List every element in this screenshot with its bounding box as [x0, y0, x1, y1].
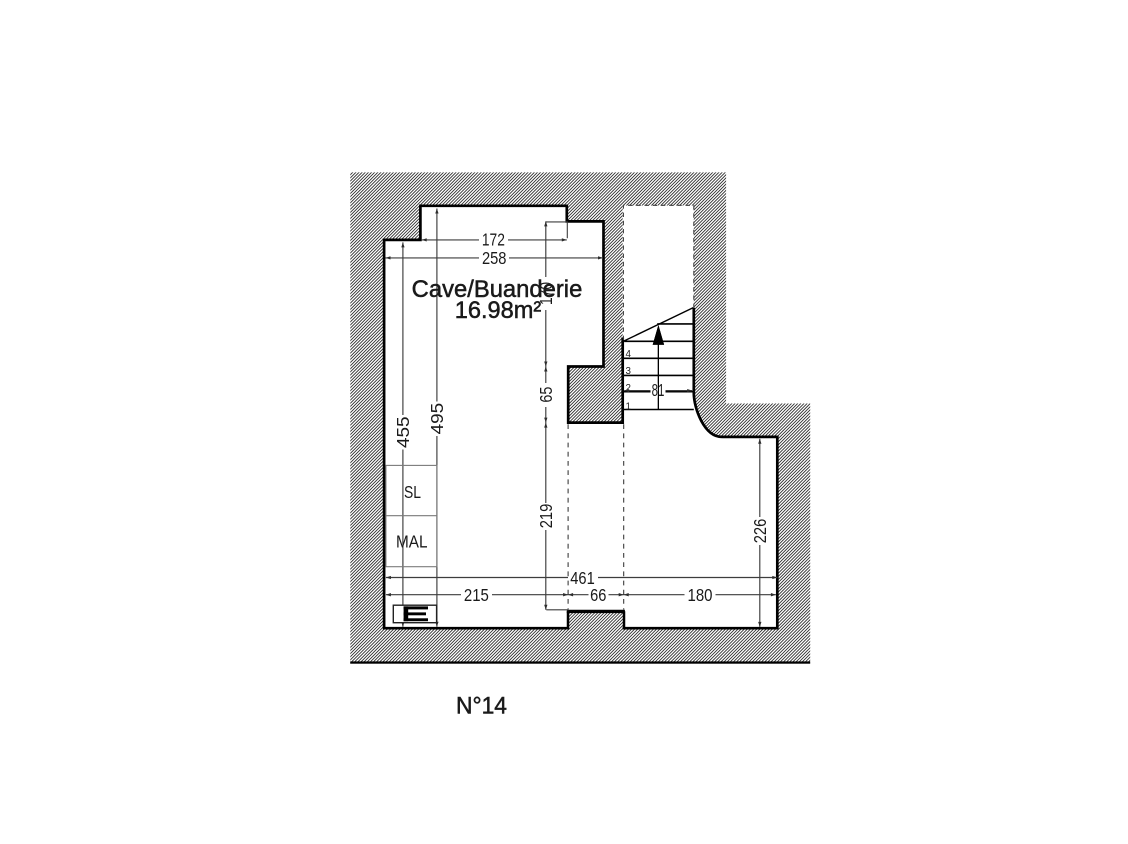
svg-text:SL: SL: [404, 482, 421, 502]
svg-text:4: 4: [626, 349, 632, 360]
svg-text:1: 1: [626, 401, 631, 412]
svg-text:495: 495: [427, 403, 447, 435]
svg-text:16.98m²: 16.98m²: [455, 297, 542, 324]
svg-text:3: 3: [626, 366, 632, 377]
svg-text:2: 2: [626, 383, 631, 394]
svg-text:MAL: MAL: [396, 532, 428, 552]
svg-text:219: 219: [536, 504, 556, 529]
svg-text:258: 258: [482, 248, 507, 268]
svg-text:215: 215: [464, 585, 489, 605]
svg-text:180: 180: [688, 585, 713, 605]
svg-text:65: 65: [536, 386, 556, 402]
svg-text:N°14: N°14: [456, 693, 507, 720]
svg-text:66: 66: [590, 585, 606, 605]
svg-text:455: 455: [393, 416, 413, 448]
svg-text:172: 172: [482, 230, 505, 250]
svg-text:226: 226: [750, 519, 770, 544]
